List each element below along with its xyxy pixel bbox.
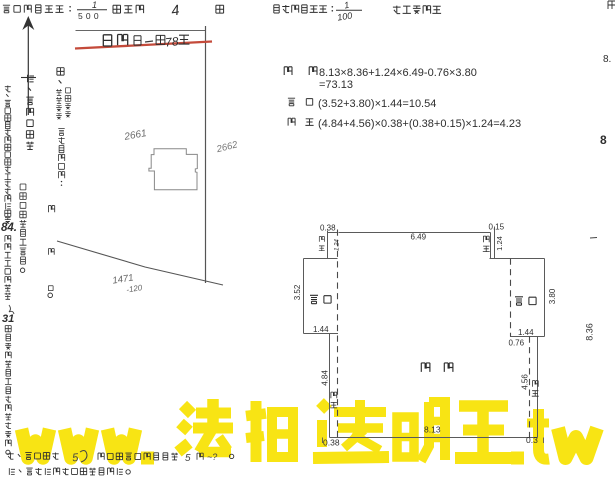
svg-text:0.3: 0.3 (526, 435, 538, 445)
svg-text:1.44: 1.44 (518, 328, 534, 337)
svg-text:100: 100 (337, 10, 353, 22)
svg-text:8.36: 8.36 (585, 323, 595, 341)
svg-text:3.52: 3.52 (293, 284, 302, 300)
svg-text:0.38: 0.38 (323, 438, 340, 448)
svg-text:8.13×8.36+1.24×6.49-0.76×3.80: 8.13×8.36+1.24×6.49-0.76×3.80 (319, 67, 477, 79)
svg-text:1: 1 (92, 0, 97, 10)
svg-text:1.24: 1.24 (495, 236, 504, 251)
svg-text:~?: ~? (207, 452, 217, 462)
svg-text:1.24: 1.24 (335, 239, 341, 251)
svg-text:1: 1 (343, 0, 350, 10)
svg-text:2662: 2662 (215, 139, 240, 155)
svg-text:3.80: 3.80 (548, 288, 557, 304)
svg-text:4: 4 (170, 3, 180, 20)
svg-text:(3.52+3.80)×1.44=10.54: (3.52+3.80)×1.44=10.54 (318, 98, 436, 110)
svg-text:31: 31 (2, 313, 14, 325)
svg-text:5: 5 (185, 453, 191, 464)
svg-text:78: 78 (164, 34, 179, 49)
svg-text:4.84: 4.84 (321, 370, 330, 386)
svg-text:-120: -120 (126, 283, 144, 294)
svg-text:0.15: 0.15 (489, 223, 505, 232)
svg-text:8: 8 (600, 133, 607, 147)
svg-text:84.: 84. (1, 222, 17, 234)
svg-text:6.49: 6.49 (411, 233, 427, 242)
svg-text:=73.13: =73.13 (319, 79, 353, 91)
svg-text:(4.84+4.56)×0.38+(0.38+0.15)×1: (4.84+4.56)×0.38+(0.38+0.15)×1.24=4.23 (318, 118, 521, 130)
svg-text:1.44: 1.44 (313, 325, 329, 334)
svg-text:8.: 8. (603, 54, 611, 65)
svg-text:0.76: 0.76 (509, 339, 525, 348)
svg-text:8.13: 8.13 (424, 425, 441, 435)
svg-text:500: 500 (78, 11, 102, 21)
svg-text:2661: 2661 (123, 128, 148, 143)
svg-text:4.56: 4.56 (521, 374, 530, 390)
svg-text:0.38: 0.38 (320, 224, 336, 233)
